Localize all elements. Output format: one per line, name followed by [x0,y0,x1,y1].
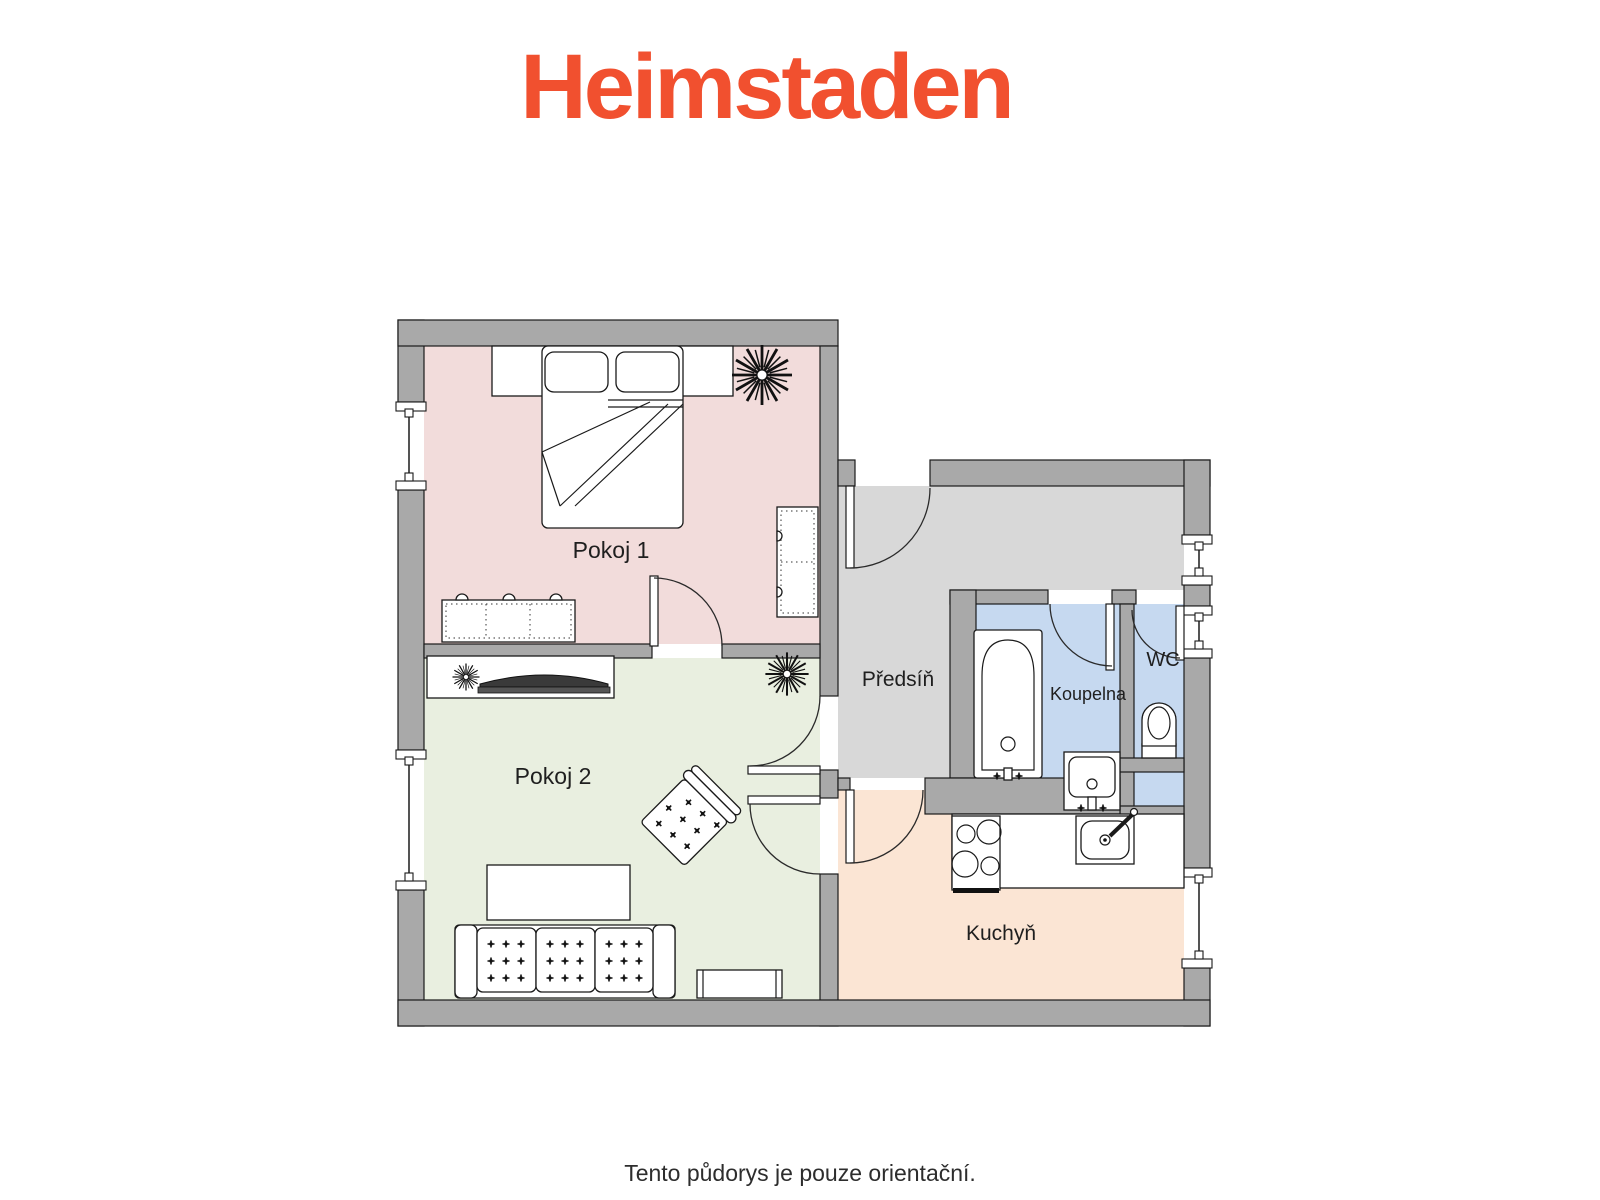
disclaimer-caption: Tento půdorys je pouze orientační. [624,1160,976,1186]
kitchen-sink-icon [1076,809,1138,865]
wall-hall-top-1 [838,460,855,486]
window-pokoj1-icon [396,402,426,490]
wall-right-3 [1184,658,1210,868]
washbasin [1064,752,1120,812]
pillow [545,352,608,392]
window-kuchyn-icon [1182,868,1212,968]
heimstaden-logo: Heimstaden [520,36,1012,138]
room-wc-niche-floor [1134,772,1184,806]
wall-koupelna-wc [1120,604,1134,814]
wall-center-1 [820,346,838,696]
label-predsin: Předsíň [862,668,934,691]
wardrobe [777,507,818,617]
window-pokoj2-icon [396,750,426,890]
label-kuchyn: Kuchyň [966,922,1036,945]
wall-top-pokoj1 [398,320,838,346]
window-wc-icon [1182,606,1212,658]
coffee-table [487,865,630,920]
bathtub [974,630,1042,780]
wall-bath-top-2 [1112,590,1136,604]
wall-bath-left [950,590,976,778]
floor-plan-page: Heimstaden [0,0,1600,1200]
toilet [1142,703,1176,758]
wall-kitchen-stub [838,778,850,790]
wall-right-1 [1184,460,1210,535]
wall-center-2 [820,770,838,798]
fixtures-kitchen [952,809,1184,894]
window-predsin-icon [1182,535,1212,585]
wall-hall-top-2 [930,460,1210,486]
label-koupelna: Koupelna [1050,684,1127,704]
tv-cabinet [427,656,614,698]
wall-right-2 [1184,585,1210,606]
label-pokoj1: Pokoj 1 [573,537,650,563]
label-wc: WC [1146,649,1179,671]
dresser [442,594,575,642]
stove-icon [952,816,1001,893]
wall-left-2 [398,490,424,750]
wall-bottom [398,1000,1210,1026]
floor-plan-canvas: Heimstaden [0,0,1600,1200]
label-pokoj2: Pokoj 2 [515,763,592,789]
wall-wc-bottom [1120,758,1184,772]
double-bed [542,346,683,528]
sofa [455,925,675,998]
radiator [697,970,782,998]
pillow [616,352,679,392]
wall-divider-pokoj-2 [722,644,820,658]
